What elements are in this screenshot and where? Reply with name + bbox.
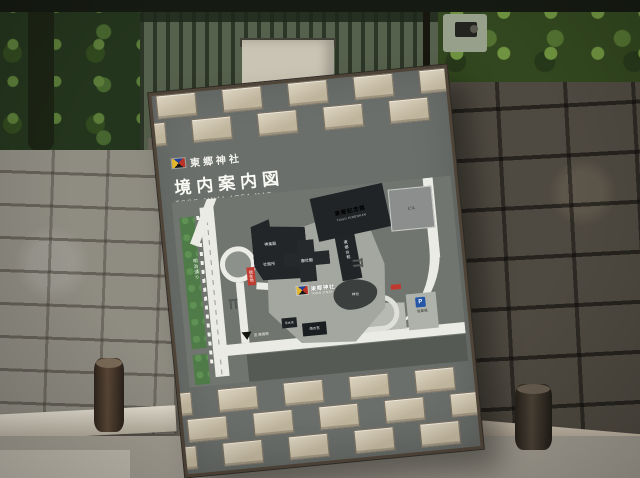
shrine-office-label: 社務所 [263,261,276,268]
stone-tile [217,385,259,413]
torii-gate-icon-east [355,258,364,268]
shrine-map-signboard: 東郷神社 境内案内図 TOGO JINJA AREA MAP 東郷神社境内案内図… [148,65,484,478]
stone-tile [283,379,325,407]
togo-hall-label: 東郷会館 [342,240,352,261]
avenue-green-strip-lower [193,354,211,385]
pond-label: 神池 [352,292,359,298]
parking-icon-east: P [415,297,426,308]
stone-tile [180,392,193,420]
z-flag-icon [172,158,186,168]
bollard-left-top [96,358,122,368]
bollard-right-top [517,384,550,394]
stone-tile [419,420,461,448]
stone-tile [257,109,299,137]
stone-tile [384,396,426,424]
stone-tile [151,122,167,150]
entrance-marker [391,284,401,290]
stone-tile [187,415,229,443]
area-map: 明治通り 原宿通り 竹下通り P P P [172,176,469,388]
tree-trunk [28,0,54,150]
station-direction-label: 至 原宿駅 [254,332,269,338]
ground-light-corner [0,450,130,478]
stone-tile [318,403,360,431]
stone-tile [221,85,263,113]
memorial-hall-building: 東郷記念館 TOGO KINENKAN [310,183,392,242]
temizuya-building: 手水舎 [281,317,297,328]
stone-tile [222,439,264,467]
photo-scene: 東郷神社 境内案内図 TOGO JINJA AREA MAP 東郷神社境内案内図… [0,0,640,478]
stone-tile [414,366,456,394]
shrine-name: 東郷神社 [189,150,242,170]
torii-gate-icon-west [228,299,238,308]
camera-lens [470,25,478,33]
top-shadow-band [0,0,640,12]
kagura-hall-label: 神楽殿 [264,241,277,248]
street-label-left: 明治通り [183,258,200,281]
stone-tile [191,115,233,143]
stone-tile [418,68,449,94]
stone-tile [252,409,294,437]
stone-tile [287,79,329,107]
stone-tile [449,390,480,418]
station-direction-arrow-icon [242,331,253,340]
stone-tile [353,426,395,454]
map-panel: 東郷神社 境内案内図 TOGO JINJA AREA MAP 東郷神社境内案内図… [157,124,473,393]
stone-tile [388,96,430,124]
you-are-here-marker: 現在地 [246,267,256,286]
z-flag-icon-map [296,286,308,295]
stone-tile [322,103,364,131]
stone-tile [288,433,330,461]
stone-tile [155,92,197,120]
stone-wall-left [0,150,174,434]
stone-tile [353,73,395,101]
wooden-bollard-left [94,358,124,432]
main-hall-label: 御社殿 [301,257,314,264]
stone-tile [348,373,390,401]
uminomiya-building: 海の宮 [302,321,327,336]
office-building: ビル [388,186,436,232]
